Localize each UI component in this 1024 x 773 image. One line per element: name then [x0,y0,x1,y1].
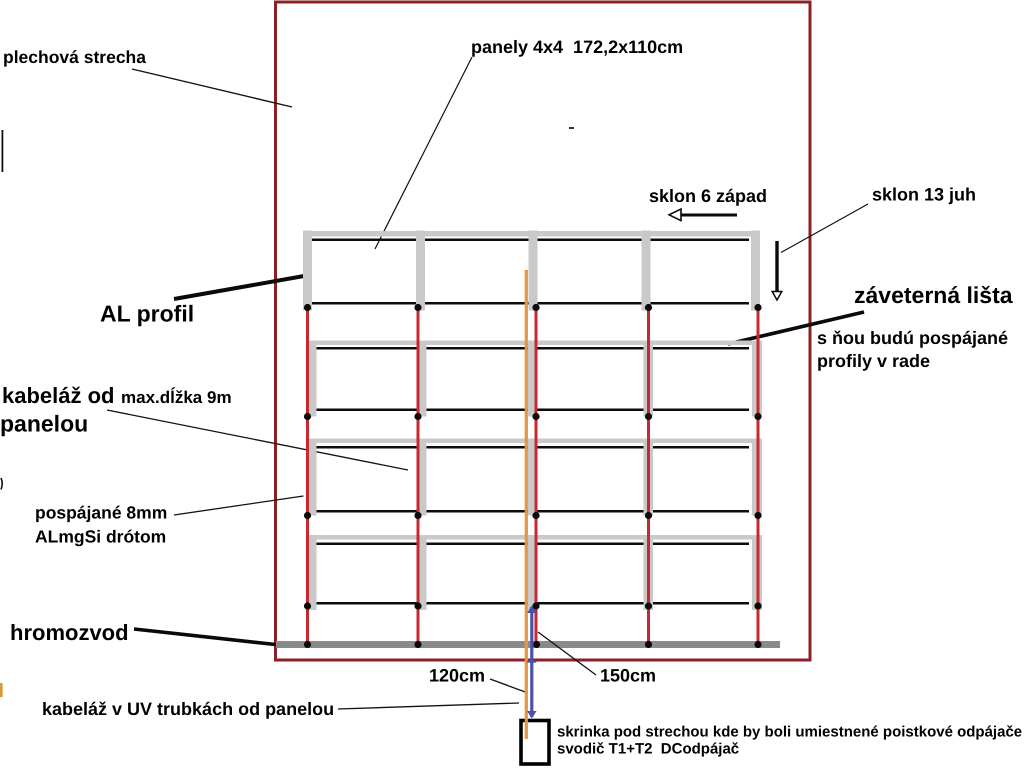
svg-text:sklon 6 západ: sklon 6 západ [649,186,767,206]
svg-text:kabeláž od: kabeláž od [2,383,114,408]
svg-text:svodič T1+T2 DCodpájač: svodič T1+T2 DCodpájač [557,741,739,758]
svg-text:záveterná lišta: záveterná lišta [854,282,1013,308]
svg-text:150cm: 150cm [600,666,656,686]
svg-text:panelou: panelou [0,411,88,437]
svg-text:skrinka pod strechou kde by bo: skrinka pod strechou kde by boli umiestn… [557,724,1022,741]
svg-text:120cm: 120cm [429,666,485,686]
svg-text:plechová strecha: plechová strecha [3,47,146,67]
svg-text:pospájané 8mm: pospájané 8mm [35,503,167,523]
svg-text:kabeláž v UV trubkách od panel: kabeláž v UV trubkách od panelou [42,699,334,719]
svg-text:profily v rade: profily v rade [817,351,930,371]
svg-text:hromozvod: hromozvod [10,620,129,645]
svg-text:panely 4x4 172,2x110cm: panely 4x4 172,2x110cm [471,37,683,57]
svg-text:max.dĺžka 9m: max.dĺžka 9m [121,387,232,407]
svg-text:ALmgSi drótom: ALmgSi drótom [35,527,166,547]
svg-text:s ňou budú pospájané: s ňou budú pospájané [817,328,1008,348]
svg-text:sklon 13 juh: sklon 13 juh [872,185,976,205]
svg-text:AL profil: AL profil [100,301,194,327]
